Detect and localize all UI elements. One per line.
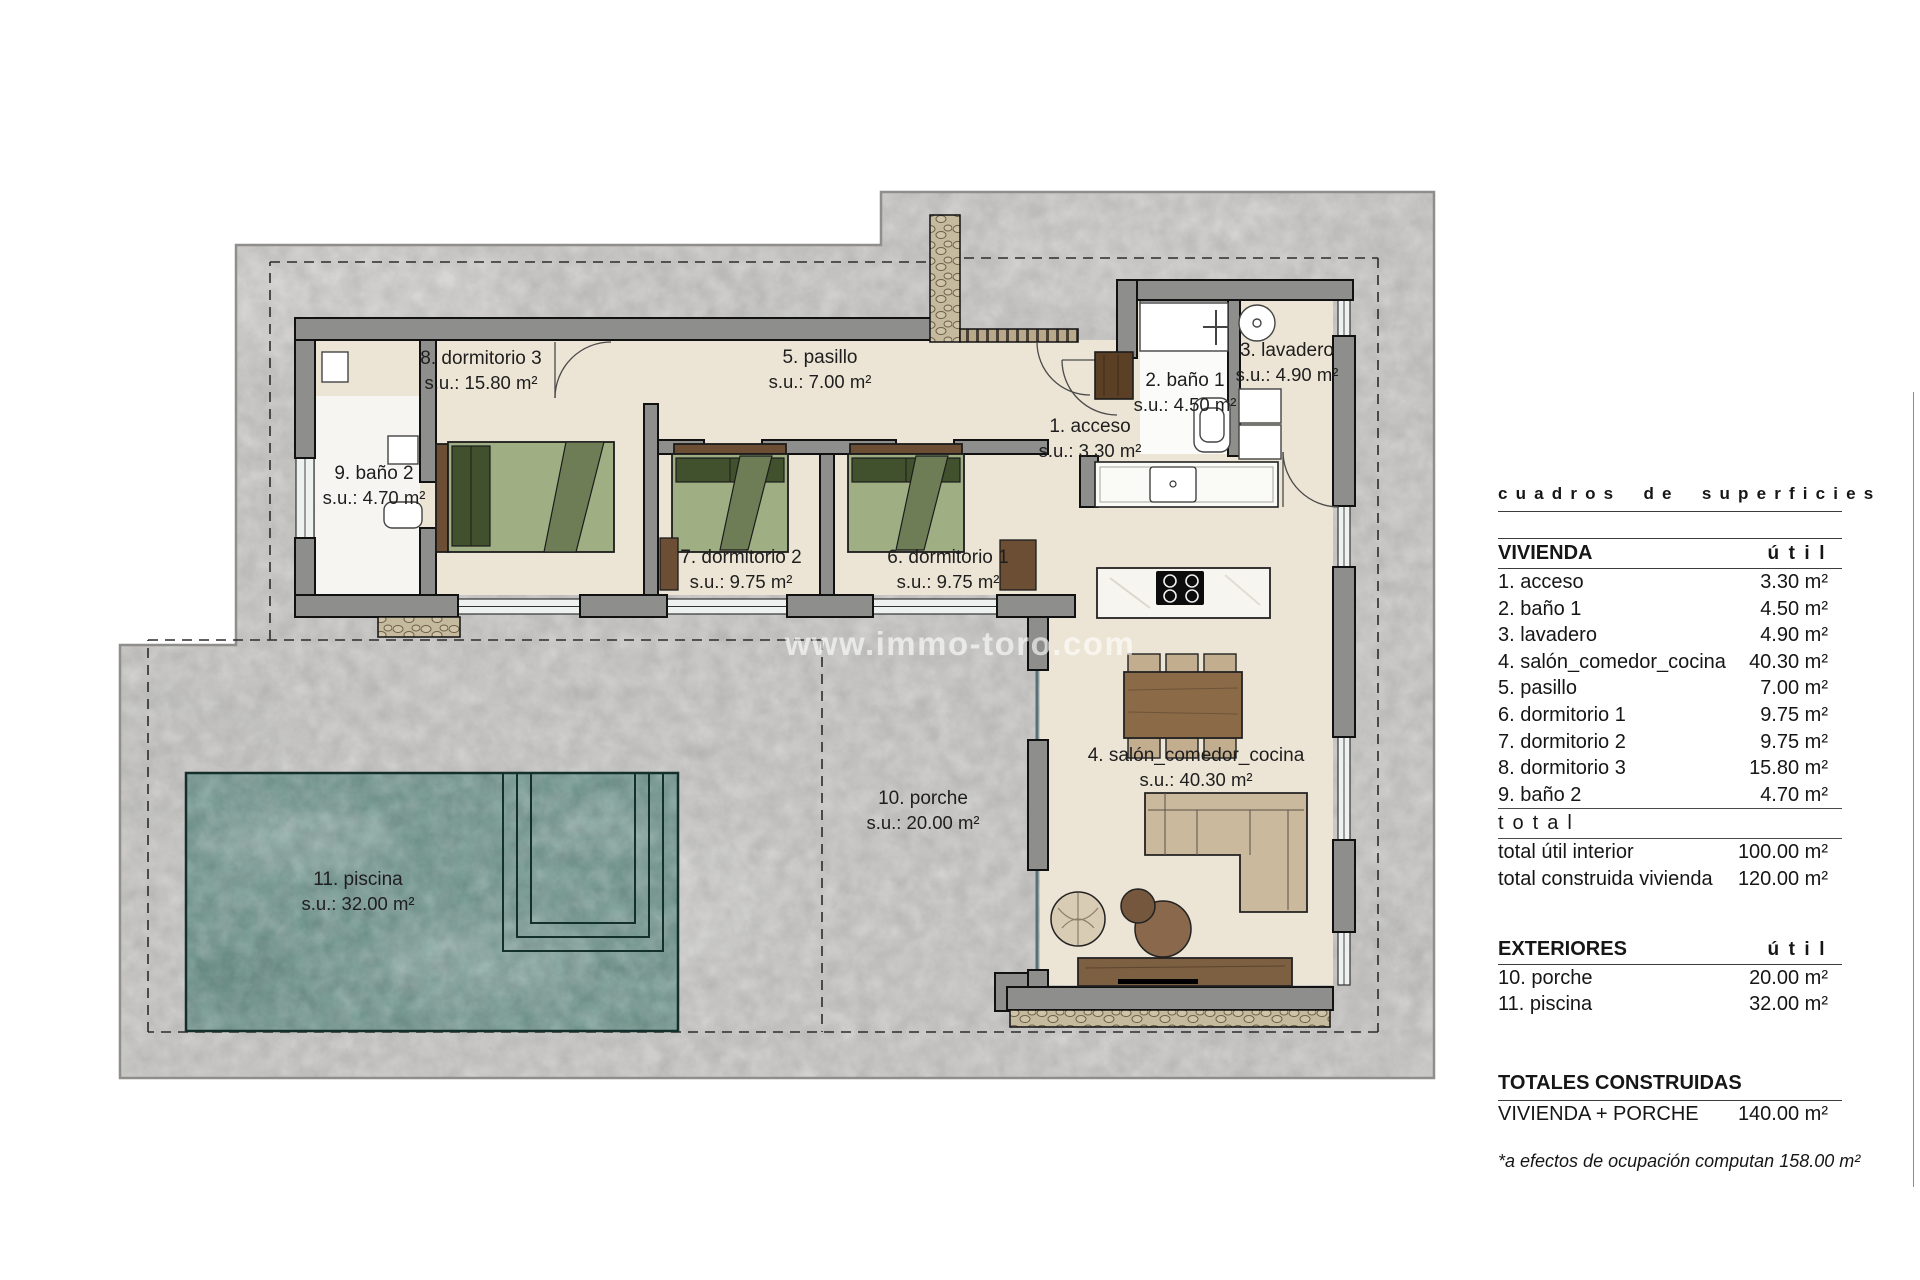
room-label-piscina: 11. piscina s.u.: 32.00 m²: [301, 868, 414, 916]
surfaces-table: cuadros de superficies VIVIENDA útil 1. …: [1498, 484, 1842, 1172]
room-label-dormitorio2: 7. dormitorio 2 s.u.: 9.75 m²: [680, 546, 801, 594]
table-row: 3. lavadero4.90 m²: [1498, 622, 1842, 649]
vivienda-header: VIVIENDA: [1498, 542, 1592, 565]
exteriores-header: EXTERIORES: [1498, 938, 1627, 961]
table-row: 11. piscina32.00 m²: [1498, 991, 1842, 1018]
watermark: www.immo-toro.com: [785, 625, 1136, 663]
entry-cabinet: [1095, 352, 1133, 399]
table-row: 5. pasillo7.00 m²: [1498, 675, 1842, 702]
floor-plan-page: 8. dormitorio 3 s.u.: 15.80 m² 5. pasill…: [0, 0, 1920, 1280]
table-row: total construida vivienda120.00 m²: [1498, 866, 1842, 893]
pouf-small: [1121, 889, 1155, 923]
vivienda-section: VIVIENDA útil 1. acceso3.30 m² 2. baño 1…: [1498, 538, 1842, 893]
room-label-pasillo: 5. pasillo s.u.: 7.00 m²: [769, 346, 872, 394]
table-row: 10. porche20.00 m²: [1498, 965, 1842, 992]
pool: [170, 773, 678, 1031]
room-label-bano2: 9. baño 2 s.u.: 4.70 m²: [323, 462, 426, 510]
surfaces-table-title: cuadros de superficies: [1498, 484, 1842, 512]
table-row: 7. dormitorio 29.75 m²: [1498, 729, 1842, 756]
room-label-dormitorio1: 6. dormitorio 1 s.u.: 9.75 m²: [887, 546, 1008, 594]
totales-header: TOTALES CONSTRUIDAS: [1498, 1072, 1842, 1101]
table-row: 9. baño 24.70 m²: [1498, 782, 1842, 809]
table-row: 1. acceso3.30 m²: [1498, 569, 1842, 596]
util-header: útil: [1768, 543, 1835, 565]
table-row: 4. salón_comedor_cocina40.30 m²: [1498, 649, 1842, 676]
room-label-bano1: 2. baño 1 s.u.: 4.50 m²: [1134, 369, 1237, 417]
table-row: total útil interior100.00 m²: [1498, 839, 1842, 866]
totales-section: TOTALES CONSTRUIDAS VIVIENDA + PORCHE140…: [1498, 1072, 1842, 1128]
entry-louver: [960, 329, 1078, 342]
total-label: total: [1498, 809, 1842, 838]
sink: [1150, 467, 1196, 502]
footnote: *a efectos de ocupación computan 158.00 …: [1498, 1151, 1842, 1172]
right-rule: [1913, 392, 1914, 1187]
room-label-dormitorio3: 8. dormitorio 3 s.u.: 15.80 m²: [420, 347, 541, 395]
table-row: 6. dormitorio 19.75 m²: [1498, 702, 1842, 729]
util-header: útil: [1768, 939, 1835, 961]
tv: [1118, 979, 1198, 984]
room-label-lavadero: 3. lavadero s.u.: 4.90 m²: [1236, 339, 1339, 387]
table-row: 2. baño 14.50 m²: [1498, 596, 1842, 623]
table-row: 8. dormitorio 315.80 m²: [1498, 755, 1842, 782]
dining-table: [1124, 672, 1242, 738]
room-label-salon: 4. salón_comedor_cocina s.u.: 40.30 m²: [1088, 744, 1305, 792]
room-label-acceso: 1. acceso s.u.: 3.30 m²: [1039, 415, 1142, 463]
exteriores-section: EXTERIORES útil 10. porche20.00 m² 11. p…: [1498, 935, 1842, 1018]
vivienda-header-row: VIVIENDA útil: [1498, 538, 1842, 569]
exteriores-header-row: EXTERIORES útil: [1498, 935, 1842, 965]
room-label-porche: 10. porche s.u.: 20.00 m²: [866, 787, 979, 835]
table-row: VIVIENDA + PORCHE140.00 m²: [1498, 1101, 1842, 1128]
